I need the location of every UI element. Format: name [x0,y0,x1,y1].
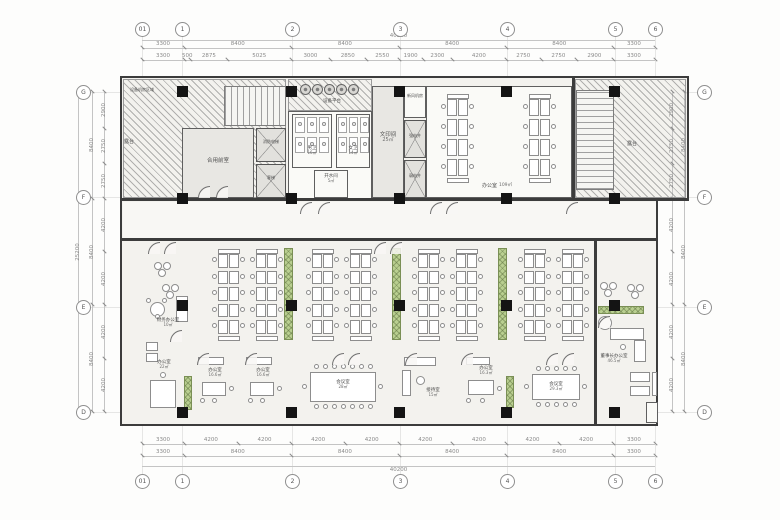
open-office-cluster-8-desk [573,287,583,301]
grid-bubble-right-2: E [697,300,712,315]
open-office-cluster-4-cap-bottom [350,336,372,341]
meeting28-chair [341,404,346,409]
wall-corridor-south [121,238,656,241]
grid-bubble-top-label-5: 5 [614,26,618,33]
dim-top-details-text-1: 500 [182,53,193,59]
dim-right-details-tick-4 [670,249,674,253]
open-office-cluster-1-desk [229,304,239,318]
open-office-cluster-7-chair [546,307,551,312]
dim-top-spans-value-3: 8400 [440,41,464,47]
open-office-cluster-7-desk [535,254,545,268]
dim-right-details-text-1: 2750 [669,139,675,153]
dim-right-details-value-6: 4200 [669,373,675,397]
open-office-cluster-3-chair [306,274,311,279]
office163-chair [497,386,502,391]
dim-left-details-value-0: 2900 [101,98,107,122]
open-office-cluster-2-desk [267,287,277,301]
office-top-cluster-2-chair [551,144,556,149]
dim-bottom-details-text-6: 4200 [472,437,486,443]
open-office-cluster-6-desk [467,304,477,318]
open-office-cluster-1-chair [240,307,245,312]
mens-wc-fixture [322,142,326,146]
dim-left-spans-text-0: 8400 [89,138,95,152]
office-top-cluster-1-chair [469,144,474,149]
office-top-cluster-1-desk [447,119,457,136]
office-top-cluster-1-chair [469,124,474,129]
grid-bubble-top-label-6: 6 [654,26,658,33]
dim-right-details-text-5: 4200 [669,325,675,339]
grid-bubble-top-label-1: 1 [181,26,185,33]
office-top-cluster-2-desk [529,139,539,156]
open-office-cluster-2-chair [250,307,255,312]
mens-wc-fixture [298,142,302,146]
grid-bubble-right-label-0: G [702,89,707,96]
meeting-pod-west-2 [166,291,174,299]
grid-bubble-top-label-3: 3 [399,26,403,33]
meeting28-chair [332,404,337,409]
open-office-cluster-7-desk [524,320,534,334]
dim-right-details-value-5: 4200 [669,320,675,344]
dim-left-details-text-3: 4200 [101,218,107,232]
open-office-cluster-1-desk [229,254,239,268]
open-office-cluster-5-desk [418,271,428,285]
open-office-cluster-7-chair [546,274,551,279]
meeting293-chair [554,366,559,371]
open-office-cluster-2-desk [267,304,277,318]
open-office-cluster-7-desk [524,304,534,318]
cabinet-office22 [184,376,192,410]
open-office-cluster-2-desk [256,304,266,318]
dim-left-details-text-0: 2900 [101,103,107,117]
office-top-cluster-2-chair [523,124,528,129]
open-office-cluster-7-chair [518,274,523,279]
stair-west [224,86,286,126]
open-office-cluster-3-chair [334,307,339,312]
dim-top-details-text-3: 5025 [252,53,266,59]
open-office-cluster-3-desk [312,271,322,285]
dim-top-details-text-0: 3300 [156,53,170,59]
open-office-cluster-4-chair [372,307,377,312]
office166a-chair [212,398,217,403]
open-office-cluster-4-desk [361,271,371,285]
open-office-cluster-6-cap-bottom [456,336,478,341]
office-top-cluster-1-desk [458,119,468,136]
womens-wc-fixture [341,122,345,126]
dim-top-details-text-4: 3000 [303,53,317,59]
grid-bubble-left-label-1: F [82,194,85,201]
office166a-desk [202,382,226,396]
open-office-cluster-8-cap-bottom [562,336,584,341]
office-top-cluster-2-chair [551,164,556,169]
open-office-cluster-8-desk [562,254,572,268]
open-office-cluster-5-desk [429,271,439,285]
open-office-cluster-4-desk [350,287,360,301]
meeting293-chair [545,366,550,371]
dim-left-spans-value-1: 8400 [89,240,95,264]
open-office-cluster-3-desk [323,254,333,268]
dim-right-details-value-2: 2750 [669,169,675,193]
mens-wc-fixture [322,122,326,126]
dim-left-details-text-2: 2750 [101,174,107,188]
chairman-chair [620,344,626,350]
meeting293-chair [524,384,529,389]
cabinet-open-office-3 [498,248,507,340]
open-office-cluster-5-desk [429,304,439,318]
dim-top-details-text-9: 4200 [472,53,486,59]
open-office-cluster-1-desk [218,320,228,334]
dim-bottom-details-value-8: 4200 [574,437,598,443]
womens-wc-fixture [352,142,356,146]
grid-bubble-top-6: 6 [648,22,663,37]
dim-top-spans-text-0: 3300 [156,41,170,47]
grid-bubble-top-2: 2 [285,22,300,37]
dim-top-details-value-5: 2850 [336,53,360,59]
grid-bubble-bottom-label-4: 4 [506,478,510,485]
dim-bottom-spans-value-4: 8400 [547,449,571,455]
dim-top-details-tick-0 [140,57,144,61]
open-office-cluster-2-desk [267,254,277,268]
column-r3-c4 [609,407,620,418]
open-office-cluster-5-desk [429,320,439,334]
dim-top-spans-text-2: 8400 [338,41,352,47]
dim-overall-bottom: 40200 [384,467,414,473]
open-office-cluster-8-chair [584,274,589,279]
dim-bottom-details-text-2: 4200 [258,437,272,443]
fan-unit-3 [336,84,347,95]
open-office-cluster-2-desk [267,320,277,334]
open-office-cluster-6-chair [478,274,483,279]
open-office-cluster-4-desk [350,320,360,334]
dim-overall-left-text: 25200 [75,243,81,261]
dim-top-details-value-9: 4200 [467,53,491,59]
dim-top-details-value-6: 2550 [370,53,394,59]
chairman-desk-return [634,340,646,362]
dim-top-details-text-7: 1900 [404,53,418,59]
dim-right-details-text-3: 4200 [669,218,675,232]
grid-bubble-top-4: 4 [500,22,515,37]
grid-bubble-bottom-label-3: 3 [399,478,403,485]
wall-chairman-west [594,240,597,426]
column-r0-c3 [501,86,512,97]
office-top-cluster-2-cap-bottom [529,178,551,183]
dim-top-details-value-13: 3300 [622,53,646,59]
shaft-weak-elec [404,160,426,198]
dim-bottom-spans-value-1: 8400 [226,449,250,455]
open-office-cluster-5-desk [429,254,439,268]
meeting28-chair [359,404,364,409]
womens-wc-fixture [363,142,367,146]
grid-bubble-bottom-4: 4 [500,474,515,489]
dim-right-details-value-0: 2900 [669,98,675,122]
column-r2-c0 [177,300,188,311]
open-office-cluster-7-cap-bottom [524,336,546,341]
dim-bottom-spans-text-0: 3300 [156,449,170,455]
dim-right-details-text-6: 4200 [669,378,675,392]
dim-left-details-text-6: 4200 [101,378,107,392]
dim-left-spans-text-1: 8400 [89,245,95,259]
dim-right-spans-text-0: 8400 [681,138,687,152]
office-top-cluster-2-chair [523,104,528,109]
grid-bubble-bottom-2: 2 [285,474,300,489]
mens-wc-fixture [298,122,302,126]
meeting28-chair [323,364,328,369]
open-office-cluster-4-desk [361,320,371,334]
grid-bubble-top-1: 1 [175,22,190,37]
dim-top-details-text-8: 2300 [430,53,444,59]
office-top-cluster-1-desk [458,159,468,176]
reception-sofa-left [402,370,411,396]
dim-right-details-value-4: 4200 [669,267,675,291]
office-top-cluster-1-chair [441,144,446,149]
open-office-cluster-4-desk [350,304,360,318]
dim-top-spans-text-5: 3300 [627,41,641,47]
open-office-cluster-4-desk [361,304,371,318]
office-top-cluster-2-desk [529,119,539,136]
grid-bubble-top-5: 5 [608,22,623,37]
dim-overall-left: 25200 [75,240,81,264]
office-top-cluster-1-desk [447,99,457,116]
dim-bottom-details-text-1: 4200 [204,437,218,443]
dim-bottom-details-value-0: 3300 [151,437,175,443]
open-office-cluster-1-desk [229,287,239,301]
grid-bubble-left-label-2: E [82,304,86,311]
dim-left-details-value-5: 4200 [101,320,107,344]
cabinet-open-office-2 [392,248,401,340]
room-shared-front [182,128,254,198]
dim-bottom-details-text-3: 4200 [311,437,325,443]
office163-desk [468,380,494,395]
fan-unit-0 [300,84,311,95]
column-r0-c4 [609,86,620,97]
open-office-cluster-5-chair [440,274,445,279]
open-office-cluster-6-desk [456,320,466,334]
office-top-cluster-2-chair [523,164,528,169]
dim-bottom-details-tick-0 [140,441,144,445]
column-r3-c2 [394,407,405,418]
meeting-pod-west-1 [158,269,166,277]
dim-top-details-value-12: 2900 [582,53,606,59]
open-office-cluster-6-desk [456,271,466,285]
open-office-cluster-7-desk [524,254,534,268]
open-office-cluster-8-desk [562,320,572,334]
open-office-cluster-6-chair [450,274,455,279]
column-r0-c0 [177,86,188,97]
chairman-desk [610,328,644,340]
column-r0-c2 [394,86,405,97]
dim-left-details-text-4: 4200 [101,272,107,286]
open-office-cluster-1-chair [212,307,217,312]
open-office-cluster-5-desk [418,320,428,334]
dim-bottom-spans-text-1: 8400 [231,449,245,455]
open-office-cluster-5-desk [418,287,428,301]
elevator-fire-shaft [256,128,286,162]
open-office-cluster-4-desk [350,271,360,285]
meeting293-chair [554,402,559,407]
open-office-cluster-5-desk [429,287,439,301]
office-top-cluster-2-chair [551,104,556,109]
open-office-cluster-5-desk [418,304,428,318]
open-office-cluster-4-chair [344,307,349,312]
dim-bottom-details-text-8: 4200 [579,437,593,443]
meeting28-chair [350,404,355,409]
dim-right-details-text-0: 2900 [669,103,675,117]
finance-chair [146,298,151,303]
meeting28-chair [314,404,319,409]
dim-overall-bottom-text: 40200 [390,467,408,473]
dim-bottom-spans-text-5: 3300 [627,449,641,455]
chairman-sofa [630,372,650,382]
office-top-cluster-2-desk [540,119,550,136]
open-office-cluster-4-desk [350,254,360,268]
dim-bottom-details-text-7: 4200 [525,437,539,443]
grid-bubble-left-1: F [76,190,91,205]
grid-bubble-right-label-2: E [703,304,707,311]
open-office-cluster-2-cap-bottom [256,336,278,341]
dim-left-details-value-3: 4200 [101,213,107,237]
mens-wc-fixture [310,122,314,126]
grid-bubble-left-label-3: D [81,409,86,416]
open-office-cluster-8-desk [562,271,572,285]
open-office-cluster-3-cap-bottom [312,336,334,341]
open-office-cluster-6-chair [450,307,455,312]
open-office-cluster-3-desk [323,304,333,318]
office-top-cluster-2-chair [551,124,556,129]
open-office-cluster-1-desk [218,304,228,318]
open-office-cluster-8-chair [584,307,589,312]
office-top-cluster-1-desk [458,139,468,156]
dim-top-details-text-5: 2850 [341,53,355,59]
grid-bubble-bottom-label-5: 5 [614,478,618,485]
column-r3-c0 [177,407,188,418]
open-office-cluster-6-desk [467,320,477,334]
dim-top-spans-value-0: 3300 [151,41,175,47]
open-office-cluster-8-desk [562,287,572,301]
dim-left-spans-value-0: 8400 [89,133,95,157]
open-office-cluster-1-cap-bottom [218,336,240,341]
column-r1-c3 [501,193,512,204]
office-top-cluster-1-chair [441,124,446,129]
grid-bubble-left-0: G [76,85,91,100]
dim-top-details-value-10: 2750 [511,53,535,59]
office-top-cluster-2-chair [523,144,528,149]
column-r2-c4 [609,300,620,311]
dim-bottom-spans-text-3: 8400 [445,449,459,455]
finance-chair [162,298,167,303]
open-office-cluster-7-desk [535,304,545,318]
open-office-cluster-2-desk [267,271,277,285]
dim-bottom-spans-tick-0 [140,453,144,457]
dim-top-spans-value-4: 8400 [547,41,571,47]
open-office-cluster-7-desk [535,320,545,334]
open-office-cluster-3-desk [323,320,333,334]
office166b-chair [277,386,282,391]
fan-unit-2 [324,84,335,95]
open-office-cluster-1-desk [229,320,239,334]
open-office-cluster-8-chair [556,274,561,279]
open-office-cluster-2-chair [278,307,283,312]
dim-right-spans-value-0: 8400 [681,133,687,157]
column-r1-c2 [394,193,405,204]
open-office-cluster-8-desk [573,271,583,285]
meeting293-chair [563,366,568,371]
dim-right-spans-value-1: 8400 [681,240,687,264]
office-top-cluster-2-desk [529,99,539,116]
meeting-pod-east-2 [631,291,639,299]
dim-top-details-value-1: 500 [175,53,199,59]
grid-bubble-left-2: E [76,300,91,315]
open-office-cluster-7-desk [524,271,534,285]
meeting28-chair [302,384,307,389]
dim-top-spans-value-5: 3300 [622,41,646,47]
dim-top-details-value-7: 1900 [399,53,423,59]
open-office-cluster-5-chair [440,307,445,312]
open-office-cluster-3-desk [323,271,333,285]
dim-bottom-details-value-2: 4200 [253,437,277,443]
chairman-service-cabinet [646,402,658,423]
elevator-passenger-shaft [256,164,286,198]
open-office-cluster-2-desk [256,271,266,285]
open-office-cluster-8-chair [556,307,561,312]
open-office-cluster-6-desk [456,304,466,318]
office166b-chair [260,398,265,403]
shaft-fresh-air [404,86,426,118]
stair-east [576,90,614,190]
grid-bubble-right-3: D [697,405,712,420]
dim-bottom-details-value-3: 4200 [306,437,330,443]
grid-bubble-top-label-4: 4 [506,26,510,33]
dim-bottom-spans-value-5: 3300 [622,449,646,455]
grid-bubble-bottom-label-6: 6 [654,478,658,485]
open-office-cluster-1-chair [212,274,217,279]
dim-bottom-details-value-5: 4200 [413,437,437,443]
dim-right-details-value-3: 4200 [669,213,675,237]
open-office-cluster-7-chair [518,307,523,312]
dim-top-details-value-11: 2750 [546,53,570,59]
open-office-cluster-3-desk [323,287,333,301]
open-office-cluster-4-desk [361,254,371,268]
dim-top-spans-text-4: 8400 [552,41,566,47]
dim-left-details-value-6: 4200 [101,373,107,397]
open-office-cluster-1-desk [218,254,228,268]
dim-bottom-details-value-9: 3300 [622,437,646,443]
meeting293-table [532,374,580,400]
meeting28-chair [323,404,328,409]
grid-bubble-right-1: F [697,190,712,205]
open-office-cluster-6-chair [478,307,483,312]
dim-top-details-text-11: 2750 [551,53,565,59]
dim-bottom-spans-value-3: 8400 [440,449,464,455]
open-office-cluster-3-chair [334,274,339,279]
grid-bubble-top-0: 01 [135,22,150,37]
office-top-cluster-2-desk [540,99,550,116]
dim-right-details-text-2: 2750 [669,174,675,188]
grid-bubble-bottom-1: 1 [175,474,190,489]
dim-bottom-spans-text-2: 8400 [338,449,352,455]
open-office-cluster-8-desk [562,304,572,318]
dim-bottom-details-text-0: 3300 [156,437,170,443]
room-water [314,170,348,198]
dim-left-details-value-4: 4200 [101,267,107,291]
dim-top-details-text-13: 3300 [627,53,641,59]
open-office-cluster-6-desk [467,287,477,301]
chairman-side-table [652,372,657,396]
dim-top-spans-text-3: 8400 [445,41,459,47]
office22-fixture [146,342,158,351]
open-office-cluster-4-desk [361,287,371,301]
open-office-cluster-6-desk [467,271,477,285]
column-r2-c2 [394,300,405,311]
wall-office-stair [572,78,575,200]
